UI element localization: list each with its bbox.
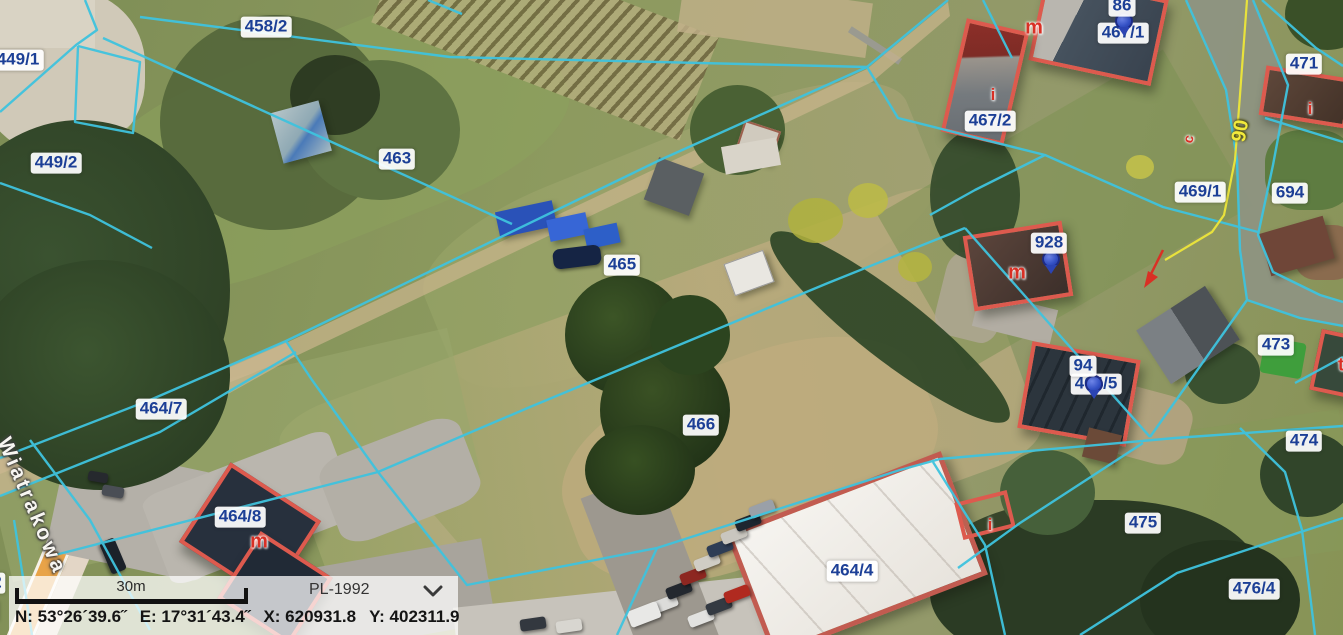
parcel-label: 476/4: [1229, 579, 1280, 600]
gorse-1: [788, 198, 843, 243]
conifer-4: [650, 295, 730, 375]
parcel-label: 449/2: [31, 153, 82, 174]
road-number-label: 90: [1228, 118, 1255, 144]
crs-select[interactable]: PL-1992: [309, 581, 449, 603]
coord-e: E: 17°31´43.4˝: [140, 607, 251, 626]
address-marker-pin-icon: [1085, 375, 1103, 393]
parcel-label: 469/1: [1175, 182, 1226, 203]
parcel-label: 463: [379, 149, 415, 170]
coord-n: N: 53°26´39.6˝: [15, 607, 127, 626]
parcel-label: 2: [0, 573, 6, 594]
chevron-down-icon[interactable]: [423, 585, 443, 598]
building-function-letter: t: [1338, 355, 1343, 376]
crs-label: PL-1992: [309, 581, 370, 598]
scale-label: 30m: [116, 578, 145, 595]
map-viewport[interactable]: Wiatrakowa 449/1449/2458/2463465466464/7…: [0, 0, 1343, 635]
parcel-label: 466: [683, 415, 719, 436]
conifer-3: [585, 425, 695, 515]
coord-x: X: 620931.8: [263, 607, 356, 626]
parcel-label: 464/8: [215, 507, 266, 528]
gorse-2: [848, 183, 888, 218]
parcel-label: 694: [1272, 183, 1308, 204]
building-function-letter: i: [1308, 99, 1313, 119]
address-number-label: 928: [1031, 233, 1067, 254]
address-number-label: 86: [1109, 0, 1136, 16]
parcel-label: 473: [1258, 335, 1294, 356]
gorse-3: [898, 252, 932, 282]
parcel-label: 475: [1125, 513, 1161, 534]
coordinate-readout: N: 53°26´39.6˝E: 17°31´43.4˝X: 620931.8Y…: [15, 607, 473, 627]
parcel-label: 474: [1286, 431, 1322, 452]
building-function-letter: m: [250, 531, 268, 554]
address-number-label: 94: [1070, 356, 1097, 377]
parcel-label: 458/2: [241, 17, 292, 38]
map-statusbar: 30m PL-1992 N: 53°26´39.6˝E: 17°31´43.4˝…: [9, 576, 458, 635]
parcel-label: 464/7: [136, 399, 187, 420]
gorse-4: [1126, 155, 1154, 179]
building-function-letter: i: [991, 85, 996, 105]
parcel-label: 465: [604, 255, 640, 276]
coord-y: Y: 402311.9: [369, 607, 459, 626]
parcel-label: 471: [1286, 54, 1322, 75]
building-function-letter: i: [988, 515, 993, 535]
parcel-label: 464/4: [827, 561, 878, 582]
building-function-letter: m: [1025, 17, 1043, 40]
building-function-letter: m: [1008, 262, 1026, 285]
parcel-label: 467/2: [965, 111, 1016, 132]
parcel-label: 449/1: [0, 50, 43, 71]
